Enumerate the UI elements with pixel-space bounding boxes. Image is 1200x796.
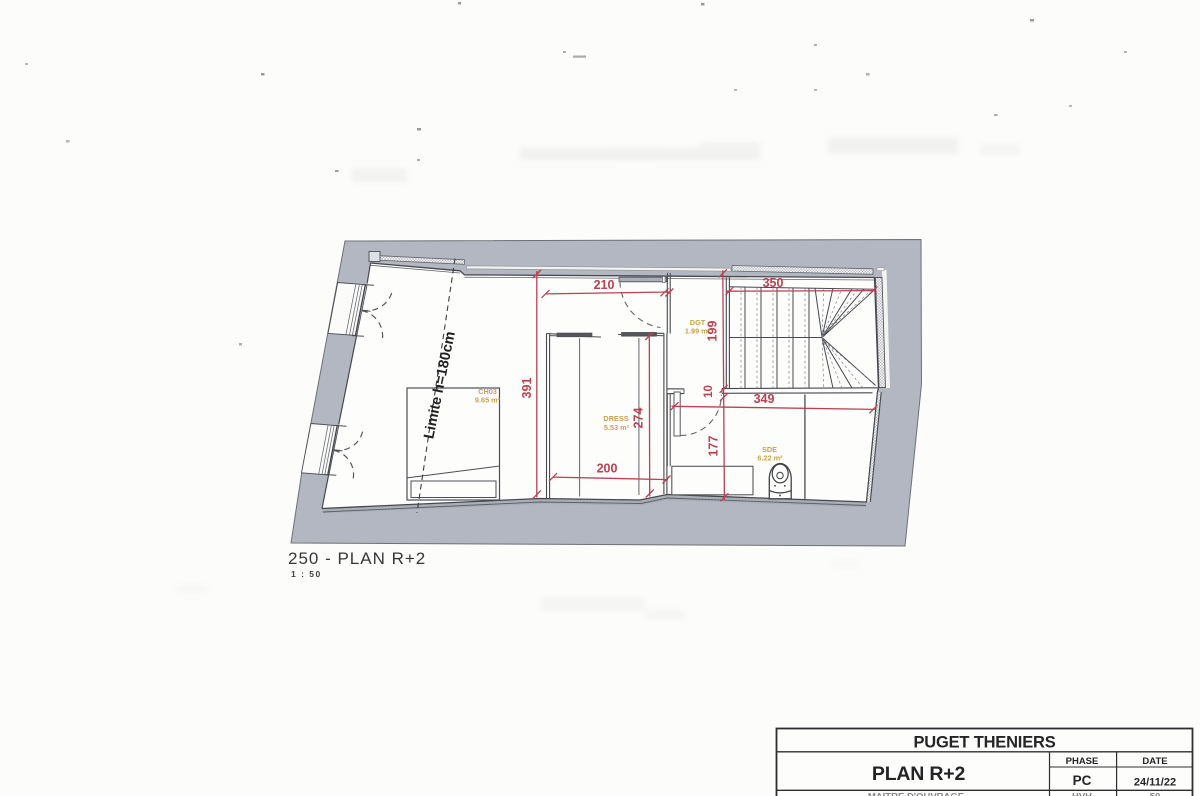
svg-text:6.22 m²: 6.22 m² bbox=[757, 454, 783, 463]
svg-text:177: 177 bbox=[707, 436, 721, 457]
svg-text:PHASE: PHASE bbox=[1066, 756, 1099, 767]
svg-text:DATE: DATE bbox=[1142, 756, 1167, 767]
svg-text:DRESS: DRESS bbox=[603, 414, 628, 423]
svg-text:250 - PLAN R+2: 250 - PLAN R+2 bbox=[288, 549, 426, 568]
svg-text:391: 391 bbox=[520, 378, 534, 399]
svg-text:10: 10 bbox=[703, 385, 715, 398]
svg-text:MAITRE D'OUVRAGE: MAITRE D'OUVRAGE bbox=[868, 792, 964, 796]
svg-text:HVH: HVH bbox=[1072, 792, 1092, 796]
svg-text:PC: PC bbox=[1073, 773, 1092, 788]
svg-text:24/11/22: 24/11/22 bbox=[1134, 777, 1176, 789]
svg-text:274: 274 bbox=[632, 408, 646, 429]
svg-text:1.99 m²: 1.99 m² bbox=[685, 327, 711, 336]
svg-text:1 : 50: 1 : 50 bbox=[291, 569, 322, 579]
svg-text:PUGET THENIERS: PUGET THENIERS bbox=[913, 734, 1055, 752]
svg-text:350: 350 bbox=[763, 276, 784, 290]
svg-text:9.65 m²: 9.65 m² bbox=[475, 396, 501, 405]
svg-text:50: 50 bbox=[1150, 792, 1161, 796]
svg-text:210: 210 bbox=[594, 278, 615, 292]
svg-text:349: 349 bbox=[754, 392, 775, 406]
svg-text:5.53 m²: 5.53 m² bbox=[604, 423, 630, 432]
svg-text:200: 200 bbox=[597, 462, 618, 476]
svg-text:PLAN R+2: PLAN R+2 bbox=[872, 763, 966, 785]
